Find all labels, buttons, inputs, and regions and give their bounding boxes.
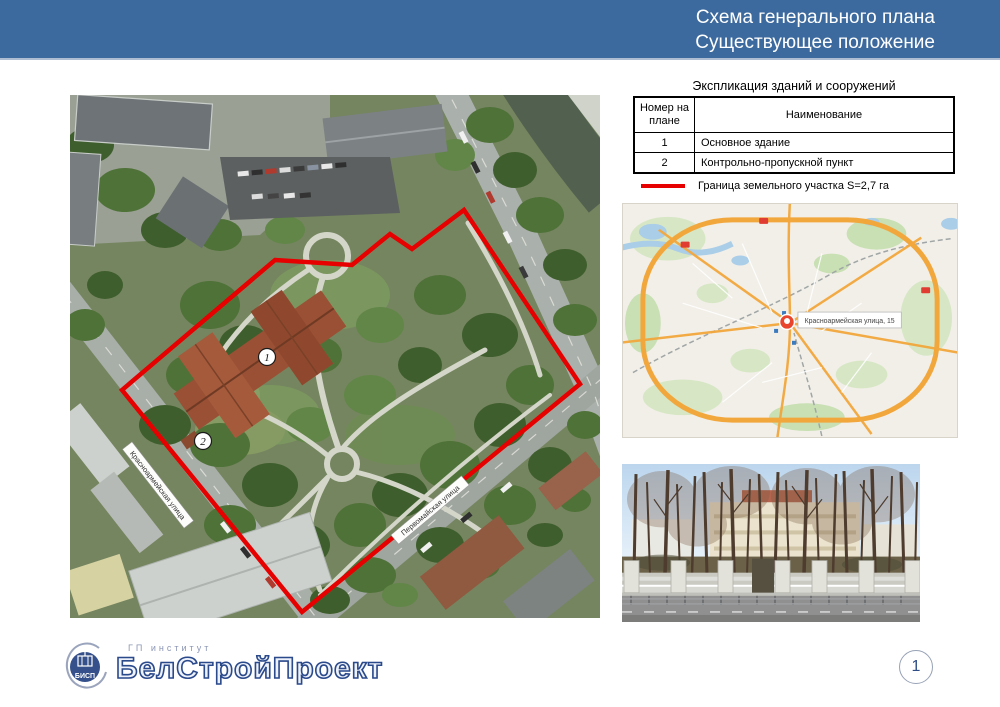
table-row: 1 Основное здание [634, 133, 954, 153]
row-name: Контрольно-пропускной пункт [695, 153, 955, 174]
row-number: 2 [634, 153, 695, 174]
map-address-marker [780, 315, 795, 330]
map-address-label: Красноармейская улица, 15 [798, 312, 901, 328]
table-row: 2 Контрольно-пропускной пункт [634, 153, 954, 174]
road [622, 593, 920, 622]
title-line-2: Существующее положение [695, 30, 935, 55]
legend-label: Граница земельного участка S=2,7 га [698, 180, 889, 192]
plan-sheet: Схема генерального плана Существующее по… [0, 0, 1000, 707]
site-photo [622, 464, 920, 622]
svg-text:БИСП: БИСП [75, 673, 95, 680]
explication-table: Номер на плане Наименование 1 Основное з… [633, 96, 955, 174]
logo-icon: БИСП [63, 640, 111, 692]
svg-text:Красноармейская улица, 15: Красноармейская улица, 15 [805, 317, 895, 325]
col-header-name: Наименование [695, 97, 955, 133]
svg-text:1: 1 [264, 352, 270, 364]
table-header-row: Номер на плане Наименование [634, 97, 954, 133]
svg-text:2: 2 [200, 436, 206, 448]
title-line-1: Схема генерального плана [695, 5, 935, 30]
explication-title: Экспликация зданий и сооружений [633, 79, 955, 93]
city-map: Красноармейская улица, 15 [622, 203, 958, 438]
col-header-number: Номер на плане [634, 97, 695, 133]
legend: Граница земельного участка S=2,7 га [641, 180, 889, 192]
row-number: 1 [634, 133, 695, 153]
boundary-line-sample [641, 184, 685, 188]
logo: БИСП ГП институт БелСтройПроект [63, 640, 383, 692]
plan-marker-2: 2 [195, 433, 212, 450]
page-number: 1 [912, 658, 921, 676]
plan-marker-1: 1 [259, 349, 276, 366]
page-title: Схема генерального плана Существующее по… [695, 5, 935, 55]
aerial-photo: Красноармейская улица Первомайская улица… [70, 95, 600, 618]
page-number-badge: 1 [899, 650, 933, 684]
title-bar: Схема генерального плана Существующее по… [0, 0, 1000, 60]
row-name: Основное здание [695, 133, 955, 153]
logo-company-name: БелСтройПроект [116, 653, 383, 684]
